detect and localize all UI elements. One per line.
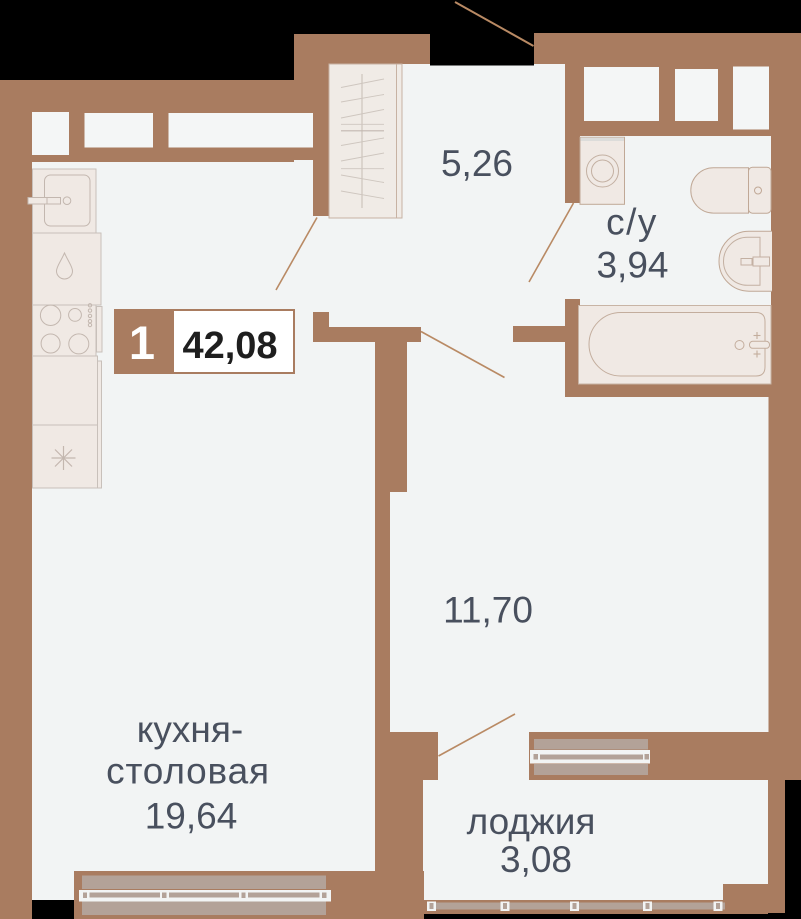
svg-text:1: 1 bbox=[129, 316, 155, 369]
svg-text:с/у: с/у bbox=[606, 202, 658, 243]
svg-text:42,08: 42,08 bbox=[182, 325, 277, 367]
svg-text:лоджия: лоджия bbox=[467, 801, 596, 842]
svg-text:3,08: 3,08 bbox=[500, 839, 572, 880]
svg-text:кухня-: кухня- bbox=[137, 709, 243, 750]
svg-text:3,94: 3,94 bbox=[596, 245, 668, 286]
svg-text:5,26: 5,26 bbox=[441, 143, 513, 184]
svg-text:11,70: 11,70 bbox=[443, 590, 533, 631]
svg-text:столовая: столовая bbox=[106, 751, 270, 792]
svg-text:19,64: 19,64 bbox=[145, 796, 238, 837]
